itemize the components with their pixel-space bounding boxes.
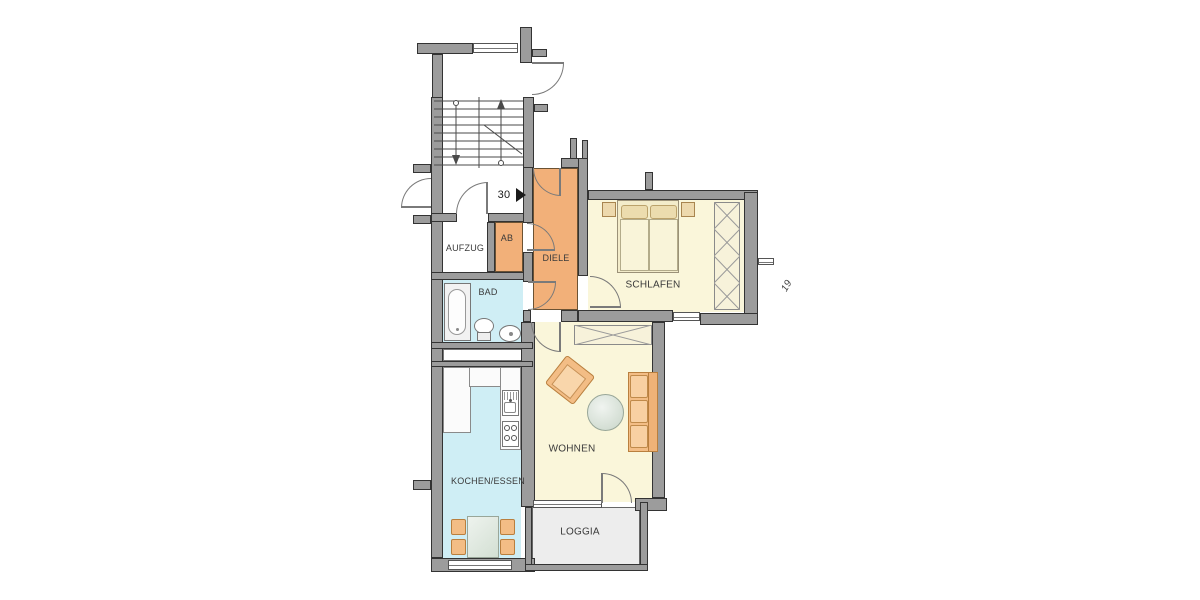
door-leaf: [401, 206, 431, 208]
stove: [502, 421, 519, 447]
kitchen-sink: [502, 390, 519, 416]
wall: [744, 192, 758, 325]
sideboard: [574, 325, 652, 345]
stairs: [434, 97, 523, 168]
wall: [523, 252, 533, 282]
room-ab: [495, 222, 523, 272]
chair: [500, 539, 515, 555]
wall: [417, 43, 473, 54]
pillow: [621, 205, 648, 219]
wall: [578, 310, 673, 322]
door-arc: [401, 178, 431, 208]
wall: [588, 190, 758, 200]
pillow: [650, 205, 677, 219]
wall: [561, 310, 578, 322]
window: [533, 500, 602, 508]
label-wohnen: WOHNEN: [549, 444, 596, 455]
bathtub: [444, 283, 471, 341]
door-leaf: [528, 281, 556, 283]
door-leaf: [590, 306, 621, 308]
label-kochen-essen: KOCHEN/ESSEN: [451, 476, 525, 486]
loggia-door-leaf: [601, 473, 603, 503]
window: [473, 43, 518, 53]
window: [448, 560, 512, 570]
nightstand: [681, 202, 695, 217]
wall: [582, 140, 588, 159]
chair: [500, 519, 515, 535]
mattress: [620, 219, 649, 271]
loggia-wall: [525, 564, 648, 571]
installation-shaft: [443, 349, 523, 361]
unit-number: 30: [498, 189, 511, 201]
label-diele: DIELE: [542, 253, 569, 263]
kitchen-counter: [469, 367, 502, 387]
door-leaf: [532, 62, 564, 64]
wall: [431, 272, 533, 280]
sink: [499, 325, 521, 342]
wall: [431, 342, 533, 349]
wall: [431, 213, 457, 222]
dining-table: [467, 516, 499, 558]
window: [673, 312, 700, 321]
nightstand: [602, 202, 616, 217]
door-leaf: [486, 182, 488, 214]
wall: [645, 172, 653, 190]
wall: [700, 313, 758, 325]
wall: [413, 480, 431, 490]
toilet-tank: [477, 332, 491, 341]
wall: [520, 27, 532, 63]
door-arc: [456, 182, 488, 214]
label-schlafen: SCHLAFEN: [626, 280, 681, 291]
wall: [487, 222, 495, 272]
label-aufzug: AUFZUG: [446, 243, 484, 253]
loggia-wall: [525, 507, 532, 569]
wall: [523, 97, 534, 168]
entry-door-leaf: [559, 168, 561, 196]
wall: [570, 138, 577, 159]
label-ab: AB: [501, 233, 513, 243]
door-leaf: [527, 249, 555, 251]
label-bad: BAD: [478, 287, 497, 297]
chair: [451, 519, 466, 535]
unit-arrow-icon: [516, 188, 526, 202]
window-marker: [758, 258, 774, 265]
chair: [451, 539, 466, 555]
wall: [532, 49, 547, 57]
mattress: [649, 219, 678, 271]
loggia-wall: [640, 502, 648, 570]
bed: [617, 200, 679, 273]
wall: [534, 104, 548, 112]
wall: [432, 54, 443, 98]
door-leaf: [559, 322, 561, 352]
sofa: [628, 372, 658, 452]
wall: [413, 164, 431, 173]
neighbor-unit-number: 19: [779, 278, 794, 293]
kitchen-counter: [443, 367, 471, 433]
wall: [523, 310, 531, 322]
coffee-table: [587, 394, 624, 431]
label-loggia: LOGGIA: [560, 527, 600, 538]
wardrobe: [714, 202, 740, 310]
door-arc: [532, 63, 564, 95]
wall: [413, 215, 431, 224]
wall: [578, 158, 588, 276]
floorplan-canvas: AUFZUG AB DIELE BAD SCHLAFEN WOHNEN KOCH…: [0, 0, 1200, 600]
